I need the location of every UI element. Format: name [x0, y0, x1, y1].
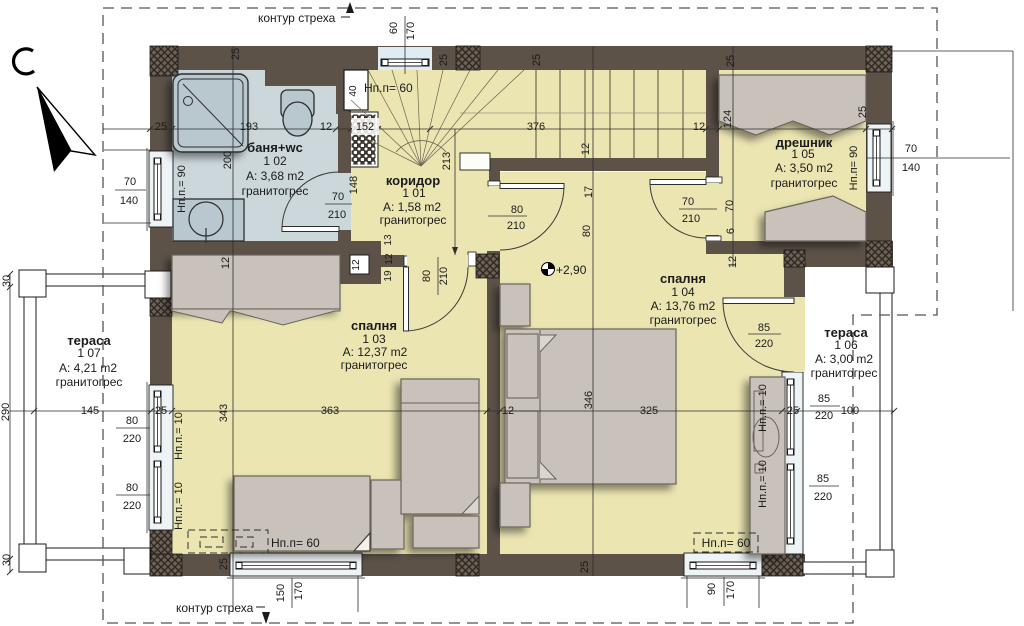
svg-text:25: 25 — [531, 54, 543, 66]
svg-text:A: 3,50 m2: A: 3,50 m2 — [775, 161, 833, 175]
svg-text:25: 25 — [155, 405, 167, 417]
svg-text:гранитогрес: гранитогрес — [650, 313, 717, 327]
svg-text:Нп.п.= 10: Нп.п.= 10 — [173, 412, 185, 460]
svg-text:343: 343 — [218, 404, 230, 422]
svg-text:85: 85 — [758, 322, 770, 334]
svg-text:+2,90: +2,90 — [556, 263, 587, 277]
svg-text:70: 70 — [682, 196, 694, 208]
svg-text:Нп.п.= 90: Нп.п.= 90 — [176, 165, 188, 213]
svg-text:17: 17 — [583, 186, 595, 198]
svg-text:148: 148 — [348, 176, 360, 194]
svg-text:спалня: спалня — [351, 318, 397, 333]
svg-text:A: 12,37 m2: A: 12,37 m2 — [343, 345, 408, 359]
svg-text:A: 1,58 m2: A: 1,58 m2 — [383, 200, 441, 214]
svg-text:13: 13 — [383, 234, 394, 246]
svg-text:контур стреха: контур стреха — [258, 11, 336, 25]
svg-text:Нп.п= 60: Нп.п= 60 — [702, 536, 751, 550]
svg-text:1 06: 1 06 — [834, 338, 858, 352]
svg-text:170: 170 — [405, 22, 417, 40]
svg-text:A: 4,21 m2: A: 4,21 m2 — [59, 361, 117, 375]
svg-text:346: 346 — [583, 391, 595, 409]
svg-text:25: 25 — [155, 121, 167, 133]
svg-text:25: 25 — [230, 48, 242, 60]
svg-text:145: 145 — [81, 405, 99, 417]
svg-text:гранитогрес: гранитогрес — [771, 176, 838, 190]
svg-text:210: 210 — [438, 267, 450, 285]
svg-text:220: 220 — [755, 338, 773, 350]
svg-text:12: 12 — [384, 253, 395, 265]
svg-text:12: 12 — [320, 121, 332, 133]
svg-text:140: 140 — [902, 162, 920, 174]
svg-text:12: 12 — [580, 143, 592, 155]
svg-text:A: 3,68 m2: A: 3,68 m2 — [246, 169, 304, 183]
svg-text:Нп.п= 90: Нп.п= 90 — [848, 146, 860, 191]
svg-text:Нп.п.= 10: Нп.п.= 10 — [757, 460, 769, 508]
svg-text:6: 6 — [725, 228, 737, 234]
svg-text:70: 70 — [124, 176, 136, 188]
svg-text:90: 90 — [706, 583, 718, 595]
svg-text:1 02: 1 02 — [263, 154, 287, 168]
svg-text:25: 25 — [218, 558, 230, 570]
svg-text:200: 200 — [222, 151, 234, 169]
svg-text:30: 30 — [1, 275, 13, 287]
svg-text:220: 220 — [123, 500, 141, 512]
svg-text:гранитогрес: гранитогрес — [380, 213, 447, 227]
svg-text:40: 40 — [348, 85, 359, 97]
svg-text:25: 25 — [857, 106, 869, 118]
svg-text:220: 220 — [123, 433, 141, 445]
svg-text:A: 13,76 m2: A: 13,76 m2 — [651, 299, 716, 313]
svg-text:12: 12 — [220, 257, 232, 269]
svg-text:25: 25 — [579, 561, 591, 573]
svg-text:1 01: 1 01 — [402, 186, 426, 200]
svg-text:363: 363 — [321, 405, 339, 417]
svg-text:140: 140 — [120, 195, 138, 207]
svg-text:70: 70 — [724, 200, 736, 212]
svg-text:12: 12 — [727, 256, 739, 268]
svg-text:193: 193 — [240, 121, 258, 133]
svg-text:1 07: 1 07 — [77, 346, 101, 360]
svg-text:баня+wc: баня+wc — [247, 140, 303, 155]
svg-text:290: 290 — [0, 403, 12, 421]
svg-text:85: 85 — [818, 393, 830, 405]
svg-text:220: 220 — [814, 491, 832, 503]
svg-text:220: 220 — [815, 410, 833, 422]
svg-text:гранитогрес: гранитогрес — [341, 358, 408, 372]
svg-text:70: 70 — [905, 143, 917, 155]
svg-text:100: 100 — [841, 405, 859, 417]
svg-text:1 04: 1 04 — [671, 285, 695, 299]
svg-text:Нп.п.= 10: Нп.п.= 10 — [173, 482, 185, 530]
svg-text:210: 210 — [682, 213, 700, 225]
svg-text:80: 80 — [421, 270, 433, 282]
svg-text:гранитогрес: гранитогрес — [242, 184, 309, 198]
svg-text:80: 80 — [126, 482, 138, 494]
svg-text:гранитогрес: гранитогрес — [811, 366, 878, 380]
svg-text:Нп.п.= 10: Нп.п.= 10 — [757, 384, 769, 432]
svg-text:80: 80 — [581, 225, 593, 237]
svg-text:12: 12 — [502, 405, 514, 417]
svg-text:контур стреха: контур стреха — [176, 601, 254, 615]
svg-text:60: 60 — [388, 22, 400, 34]
svg-text:325: 325 — [640, 405, 658, 417]
svg-text:25: 25 — [438, 54, 450, 66]
svg-text:12: 12 — [693, 121, 705, 133]
svg-text:150: 150 — [275, 584, 287, 602]
svg-text:спалня: спалня — [660, 271, 706, 286]
svg-text:213: 213 — [441, 152, 453, 170]
svg-text:70: 70 — [332, 191, 344, 203]
svg-text:80: 80 — [126, 415, 138, 427]
svg-text:80: 80 — [511, 204, 523, 216]
svg-text:19: 19 — [383, 270, 394, 282]
svg-text:Нп.п= 60: Нп.п= 60 — [271, 536, 320, 550]
svg-text:25: 25 — [787, 405, 799, 417]
svg-text:152: 152 — [356, 121, 374, 133]
svg-text:1 03: 1 03 — [362, 332, 386, 346]
svg-text:210: 210 — [507, 220, 525, 232]
svg-text:170: 170 — [293, 582, 305, 600]
svg-text:12: 12 — [351, 259, 362, 271]
svg-text:210: 210 — [328, 209, 346, 221]
svg-text:30: 30 — [1, 554, 13, 566]
svg-text:85: 85 — [817, 473, 829, 485]
svg-text:376: 376 — [527, 121, 545, 133]
svg-text:25: 25 — [725, 55, 737, 67]
svg-text:124: 124 — [722, 110, 734, 128]
svg-text:Нп.п= 60: Нп.п= 60 — [364, 81, 413, 95]
svg-text:A: 3,00 m2: A: 3,00 m2 — [815, 352, 873, 366]
svg-text:1 05: 1 05 — [791, 147, 815, 161]
svg-text:170: 170 — [725, 581, 737, 599]
svg-text:гранитогрес: гранитогрес — [56, 375, 123, 389]
